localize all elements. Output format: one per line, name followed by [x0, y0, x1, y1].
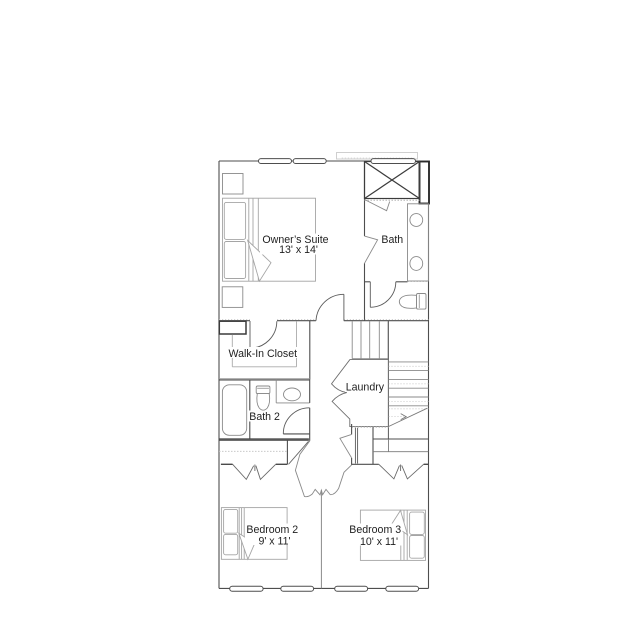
svg-text:13' x 14': 13' x 14' — [279, 244, 318, 256]
svg-text:Bedroom 3: Bedroom 3 — [349, 524, 401, 536]
svg-text:9' x 11': 9' x 11' — [258, 535, 290, 547]
svg-text:Bath: Bath — [381, 234, 403, 246]
svg-text:Bedroom 2: Bedroom 2 — [246, 524, 298, 536]
svg-text:Bath 2: Bath 2 — [249, 411, 280, 423]
svg-text:10' x 11': 10' x 11' — [360, 536, 398, 548]
svg-text:Walk-In Closet: Walk-In Closet — [229, 348, 298, 360]
svg-text:Laundry: Laundry — [346, 382, 385, 394]
